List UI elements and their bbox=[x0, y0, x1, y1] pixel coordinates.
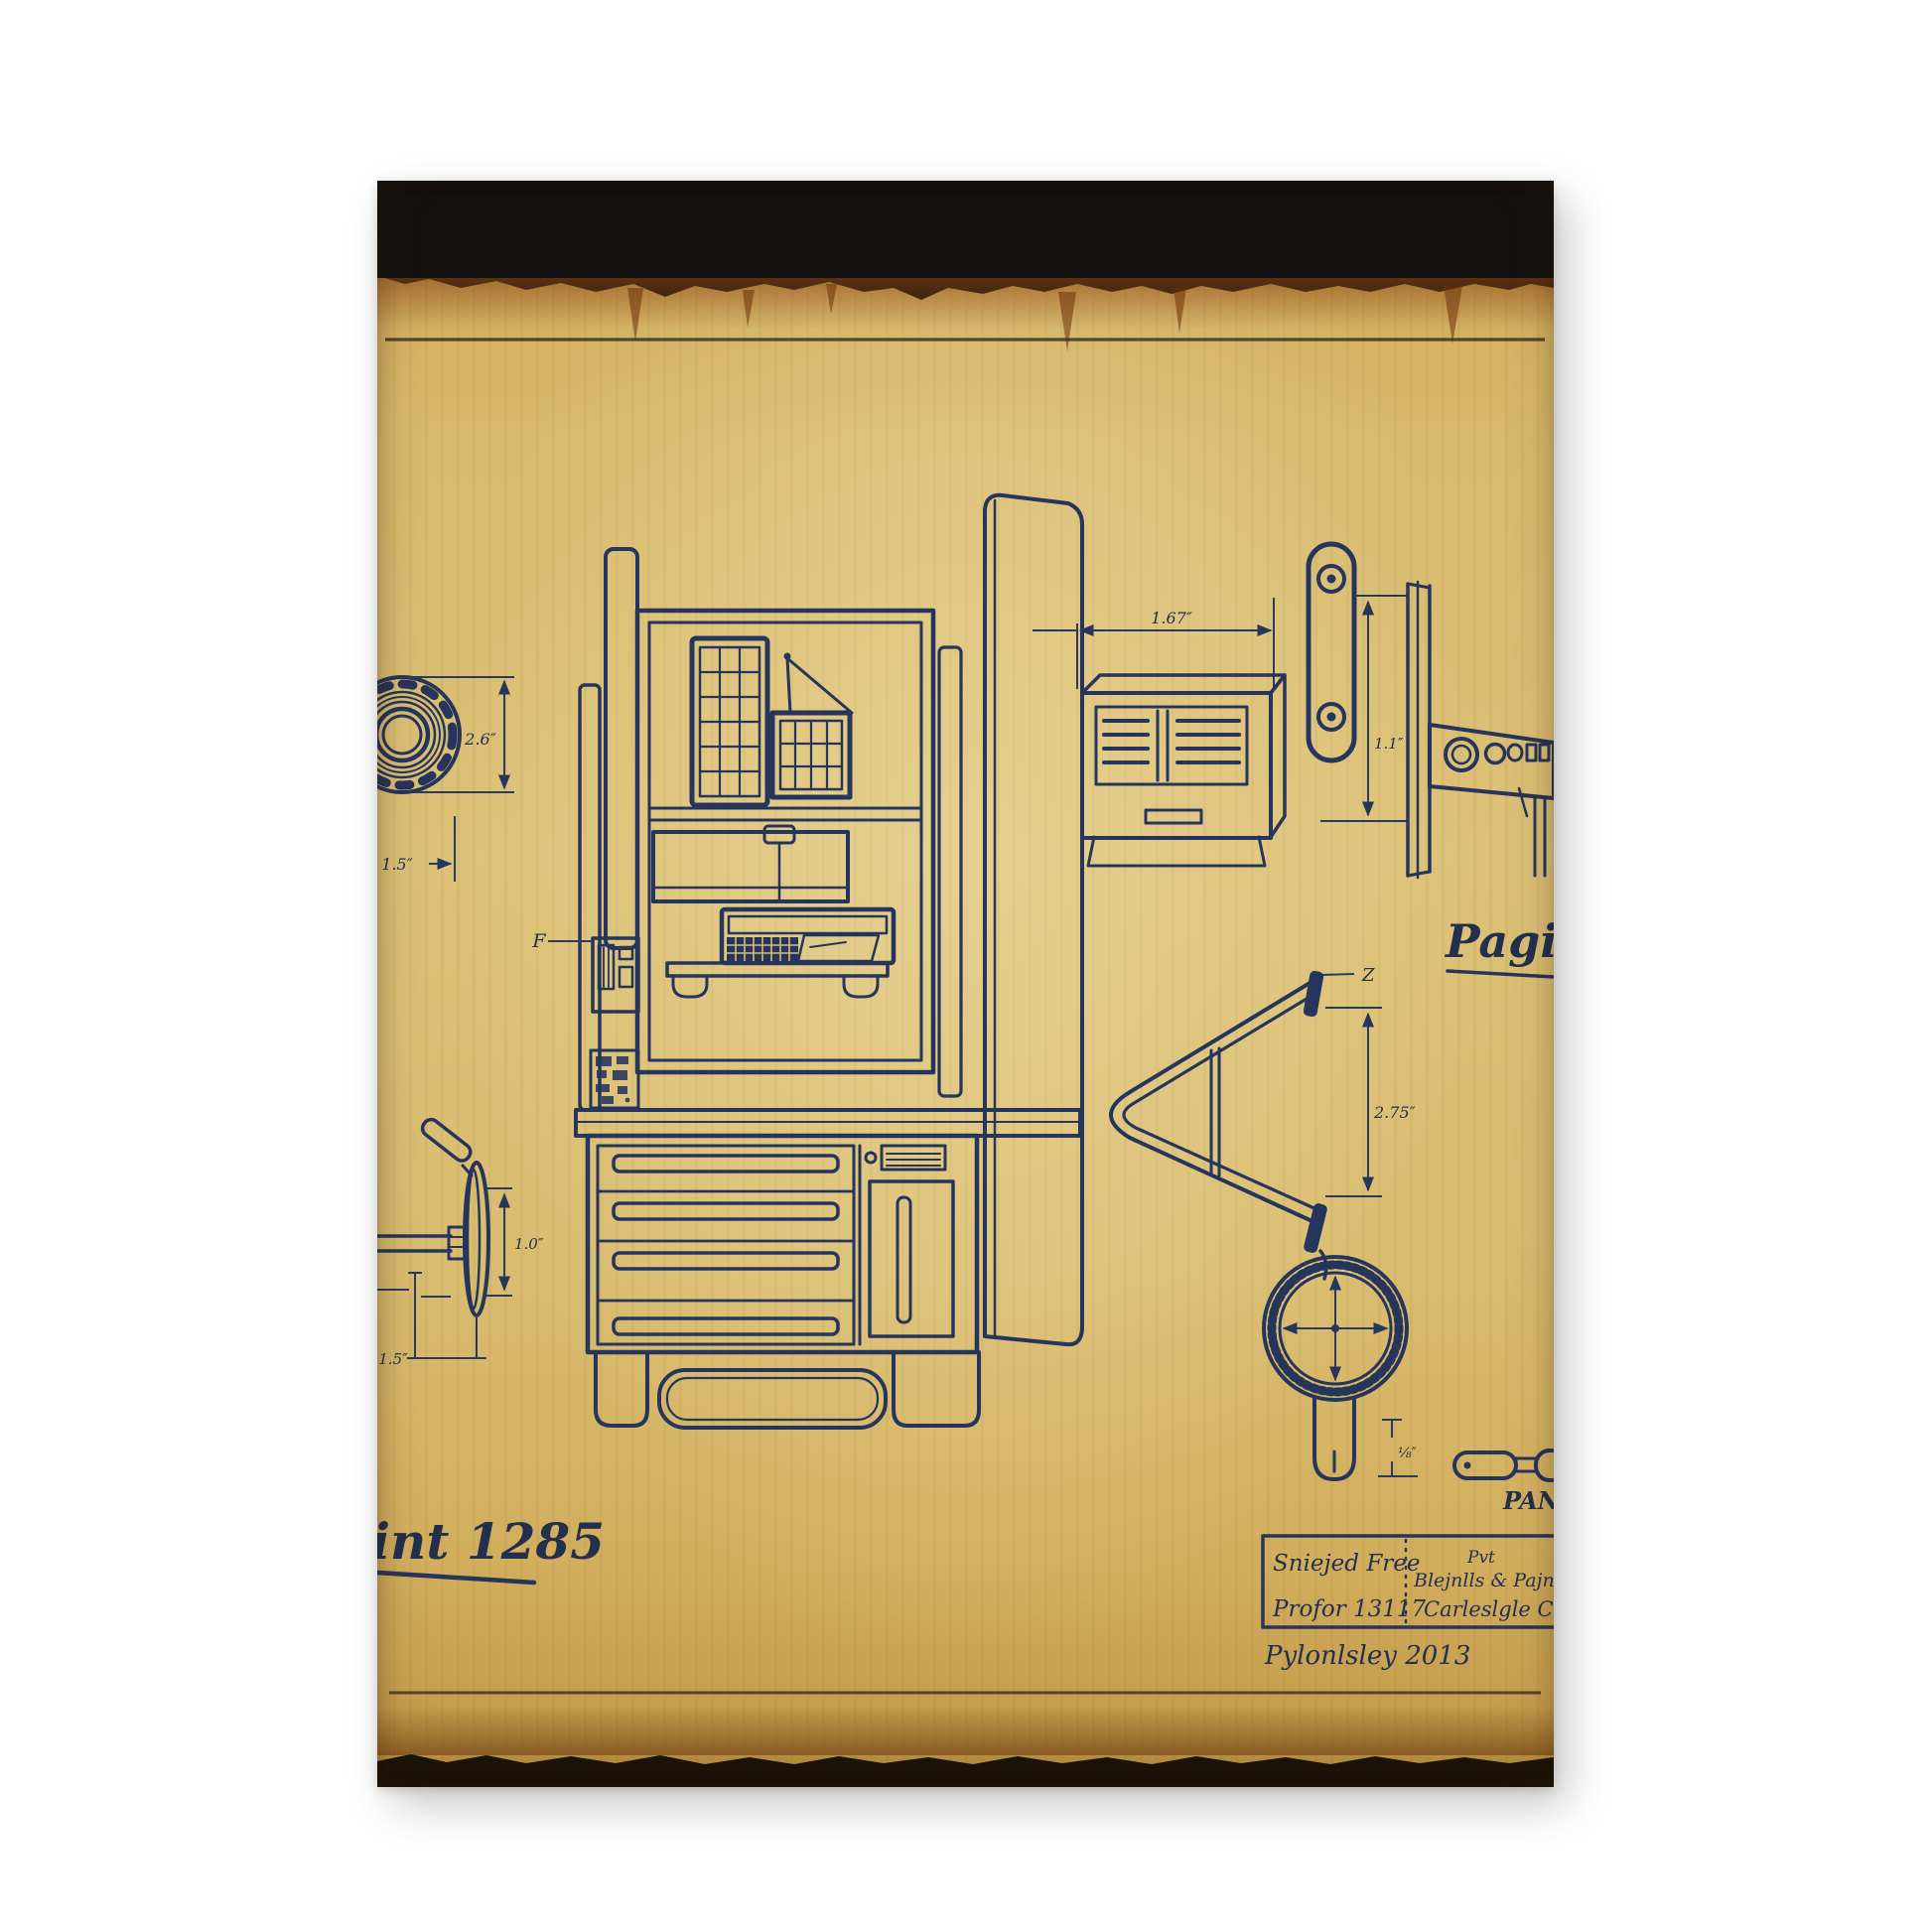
title-cell-right-2: Blejnlls & Pajn bbox=[1413, 1570, 1554, 1591]
handwheel-drawing: 1.0″ 1.5″ bbox=[377, 1116, 544, 1368]
dim-label-wheel-height: 1.0″ bbox=[514, 1235, 544, 1253]
bracket-arm-drawing bbox=[1408, 582, 1554, 878]
paper-sheet bbox=[798, 935, 879, 961]
flange-part-drawing: 2.6″ 1.5″ bbox=[377, 677, 514, 882]
gauge-drawing: ⅛″ bbox=[1264, 1257, 1418, 1479]
title-cell-right-1: Pvt bbox=[1466, 1548, 1495, 1568]
link-strap-drawing: 1.1″ bbox=[1309, 544, 1408, 821]
title-block: Sniejed Free Profor 13117 Pvt Blejnlls &… bbox=[1263, 1536, 1554, 1671]
script-text-left: int 1285 bbox=[377, 1512, 605, 1571]
pennant-flag bbox=[784, 653, 853, 714]
cabinet-foot bbox=[596, 1352, 647, 1426]
dim-label-frame-height: 2.75″ bbox=[1373, 1103, 1416, 1122]
drawer-handle bbox=[614, 1156, 838, 1172]
drawer-handle bbox=[614, 1203, 838, 1219]
cabinet-foot bbox=[894, 1352, 979, 1426]
grid-window-small bbox=[772, 713, 850, 797]
back-panel-bar bbox=[939, 647, 961, 1096]
dim-label-flange-offset: 1.5″ bbox=[381, 855, 412, 874]
a-frame-drawing: Z 2.75″ bbox=[1111, 965, 1416, 1279]
drawer-handle bbox=[614, 1318, 838, 1334]
cabinet-left-bar bbox=[580, 685, 600, 1110]
script-caption-right: Pagin bbox=[1444, 914, 1554, 977]
dim-label-wheel-offset: 1.5″ bbox=[378, 1350, 408, 1368]
label-pan: PAN bbox=[1502, 1486, 1554, 1515]
script-text-right: Pagin bbox=[1444, 914, 1554, 968]
cabinet-drawing: F bbox=[531, 495, 1082, 1428]
control-panel-b bbox=[591, 1050, 638, 1108]
dim-label-stem: ⅛″ bbox=[1398, 1446, 1418, 1461]
side-door-panel bbox=[985, 495, 1082, 1344]
burnt-top-edge bbox=[377, 181, 1554, 351]
slot-panel bbox=[653, 826, 848, 901]
round-button bbox=[866, 1153, 876, 1163]
lever-handle bbox=[419, 1116, 474, 1164]
chain-links-drawing: PAN bbox=[1454, 1450, 1554, 1515]
burnt-bottom-edge bbox=[377, 1693, 1554, 1787]
dim-label-flange-height: 2.6″ bbox=[464, 730, 495, 749]
louvers bbox=[1104, 721, 1239, 762]
title-cell-bottom-left: Profor 13117 bbox=[1272, 1596, 1427, 1622]
blueprint-canvas-print: 2.6″ 1.5″ F bbox=[377, 181, 1554, 1787]
vent-handle bbox=[1146, 810, 1201, 823]
blueprint-drawing: 2.6″ 1.5″ F bbox=[377, 181, 1554, 1787]
grid-window-large bbox=[692, 638, 767, 805]
label-f: F bbox=[531, 930, 546, 952]
script-caption-left: int 1285 bbox=[377, 1512, 605, 1583]
dim-label-vent-width: 1.67″ bbox=[1151, 609, 1192, 627]
dim-label-link-height: 1.1″ bbox=[1374, 735, 1404, 753]
cabinet-chimney bbox=[606, 549, 637, 948]
vent-box-drawing: 1.67″ bbox=[1033, 598, 1285, 866]
title-signature: Pylonlsley 2013 bbox=[1264, 1641, 1470, 1671]
product-photo-page: { "labels": { "flange_height": "2.6″", "… bbox=[0, 0, 1932, 1932]
base-cabinet bbox=[588, 1136, 979, 1428]
drawer-handle bbox=[614, 1253, 838, 1269]
title-cell-top-left: Sniejed Free bbox=[1273, 1551, 1421, 1577]
title-cell-right-3: Carleslgle Car bbox=[1424, 1597, 1554, 1621]
label-z: Z bbox=[1361, 965, 1375, 986]
keyboard-tray bbox=[667, 909, 894, 997]
